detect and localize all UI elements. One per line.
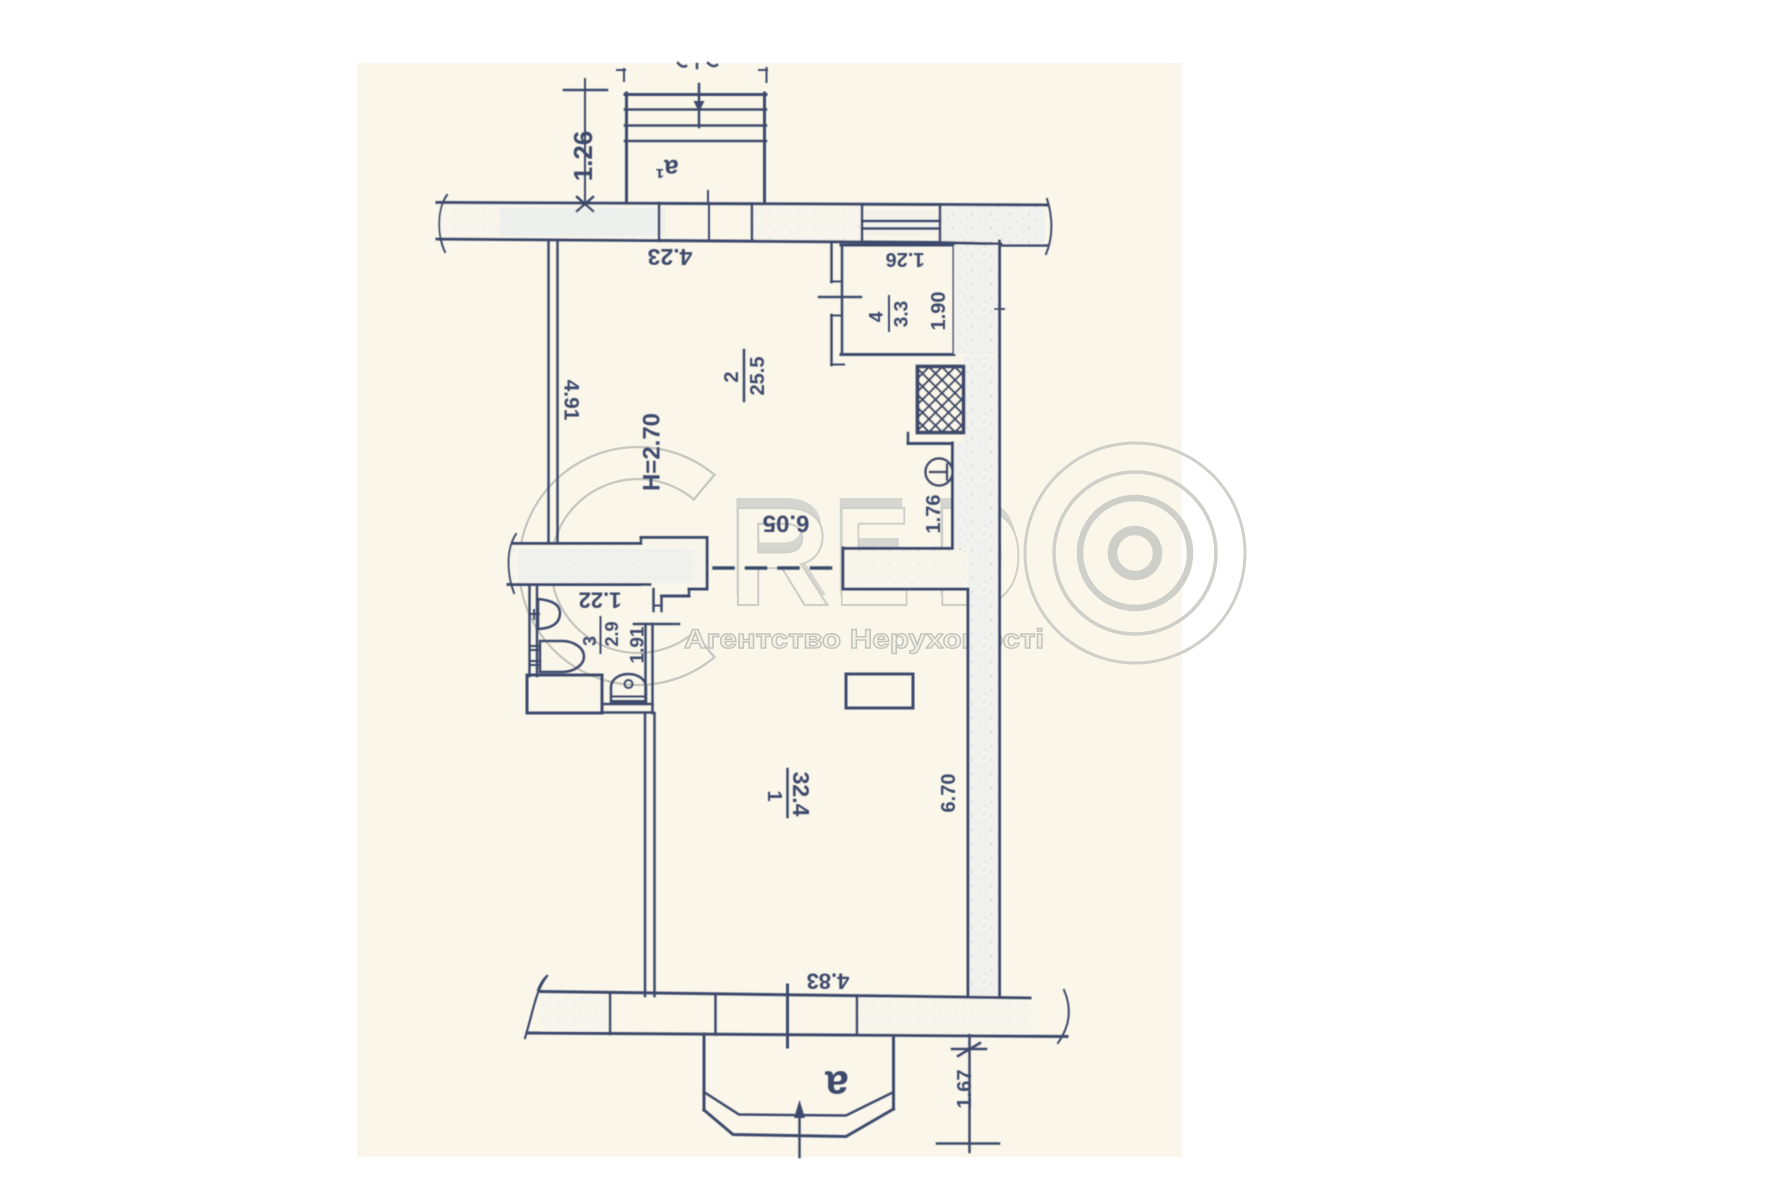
svg-text:6.70: 6.70 [938,774,960,813]
svg-text:1.67: 1.67 [954,1070,976,1109]
svg-text:H=2.70: H=2.70 [639,413,666,491]
svg-text:4: 4 [867,311,888,322]
svg-text:1.90: 1.90 [928,292,950,331]
svg-text:1.26: 1.26 [568,131,598,182]
svg-text:25.5: 25.5 [747,357,769,396]
svg-text:a¹: a¹ [655,154,678,184]
svg-text:1.26: 1.26 [886,248,925,270]
svg-text:1.22: 1.22 [579,588,622,613]
svg-text:32.4: 32.4 [788,772,814,817]
svg-text:3.3: 3.3 [892,301,913,327]
svg-text:3: 3 [580,636,600,646]
svg-text:6.05: 6.05 [763,510,810,537]
svg-text:4.23: 4.23 [648,244,693,270]
svg-text:1.91: 1.91 [628,626,649,663]
svg-text:2.9: 2.9 [602,621,622,646]
svg-text:2: 2 [721,371,743,382]
svg-text:R: R [729,477,831,635]
svg-text:4.91: 4.91 [560,380,583,421]
svg-text:4.83: 4.83 [807,969,850,994]
svg-text:1.76: 1.76 [923,495,945,534]
svg-text:1: 1 [763,790,785,801]
svg-text:a: a [825,1063,849,1110]
